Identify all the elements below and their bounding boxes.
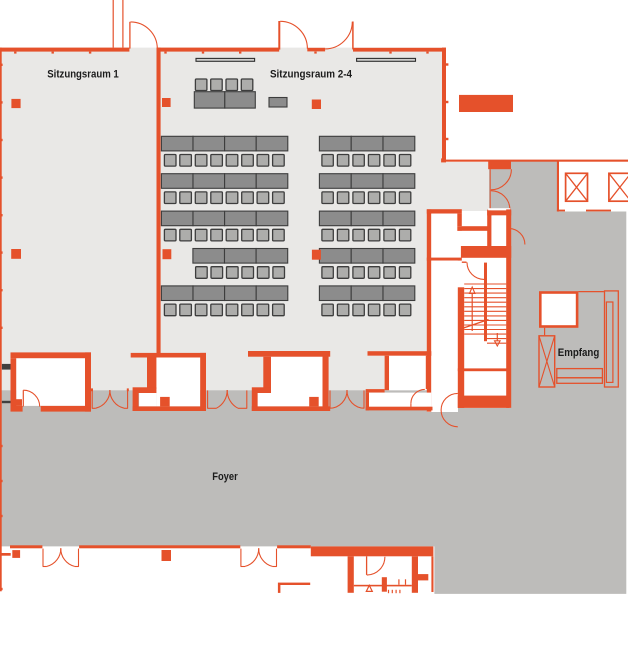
svg-text:Sitzungsraum 2-4: Sitzungsraum 2-4	[270, 69, 353, 81]
svg-text:Sitzungsraum 1: Sitzungsraum 1	[47, 69, 119, 81]
svg-text:Foyer: Foyer	[212, 471, 238, 483]
svg-text:Empfang: Empfang	[558, 347, 600, 359]
